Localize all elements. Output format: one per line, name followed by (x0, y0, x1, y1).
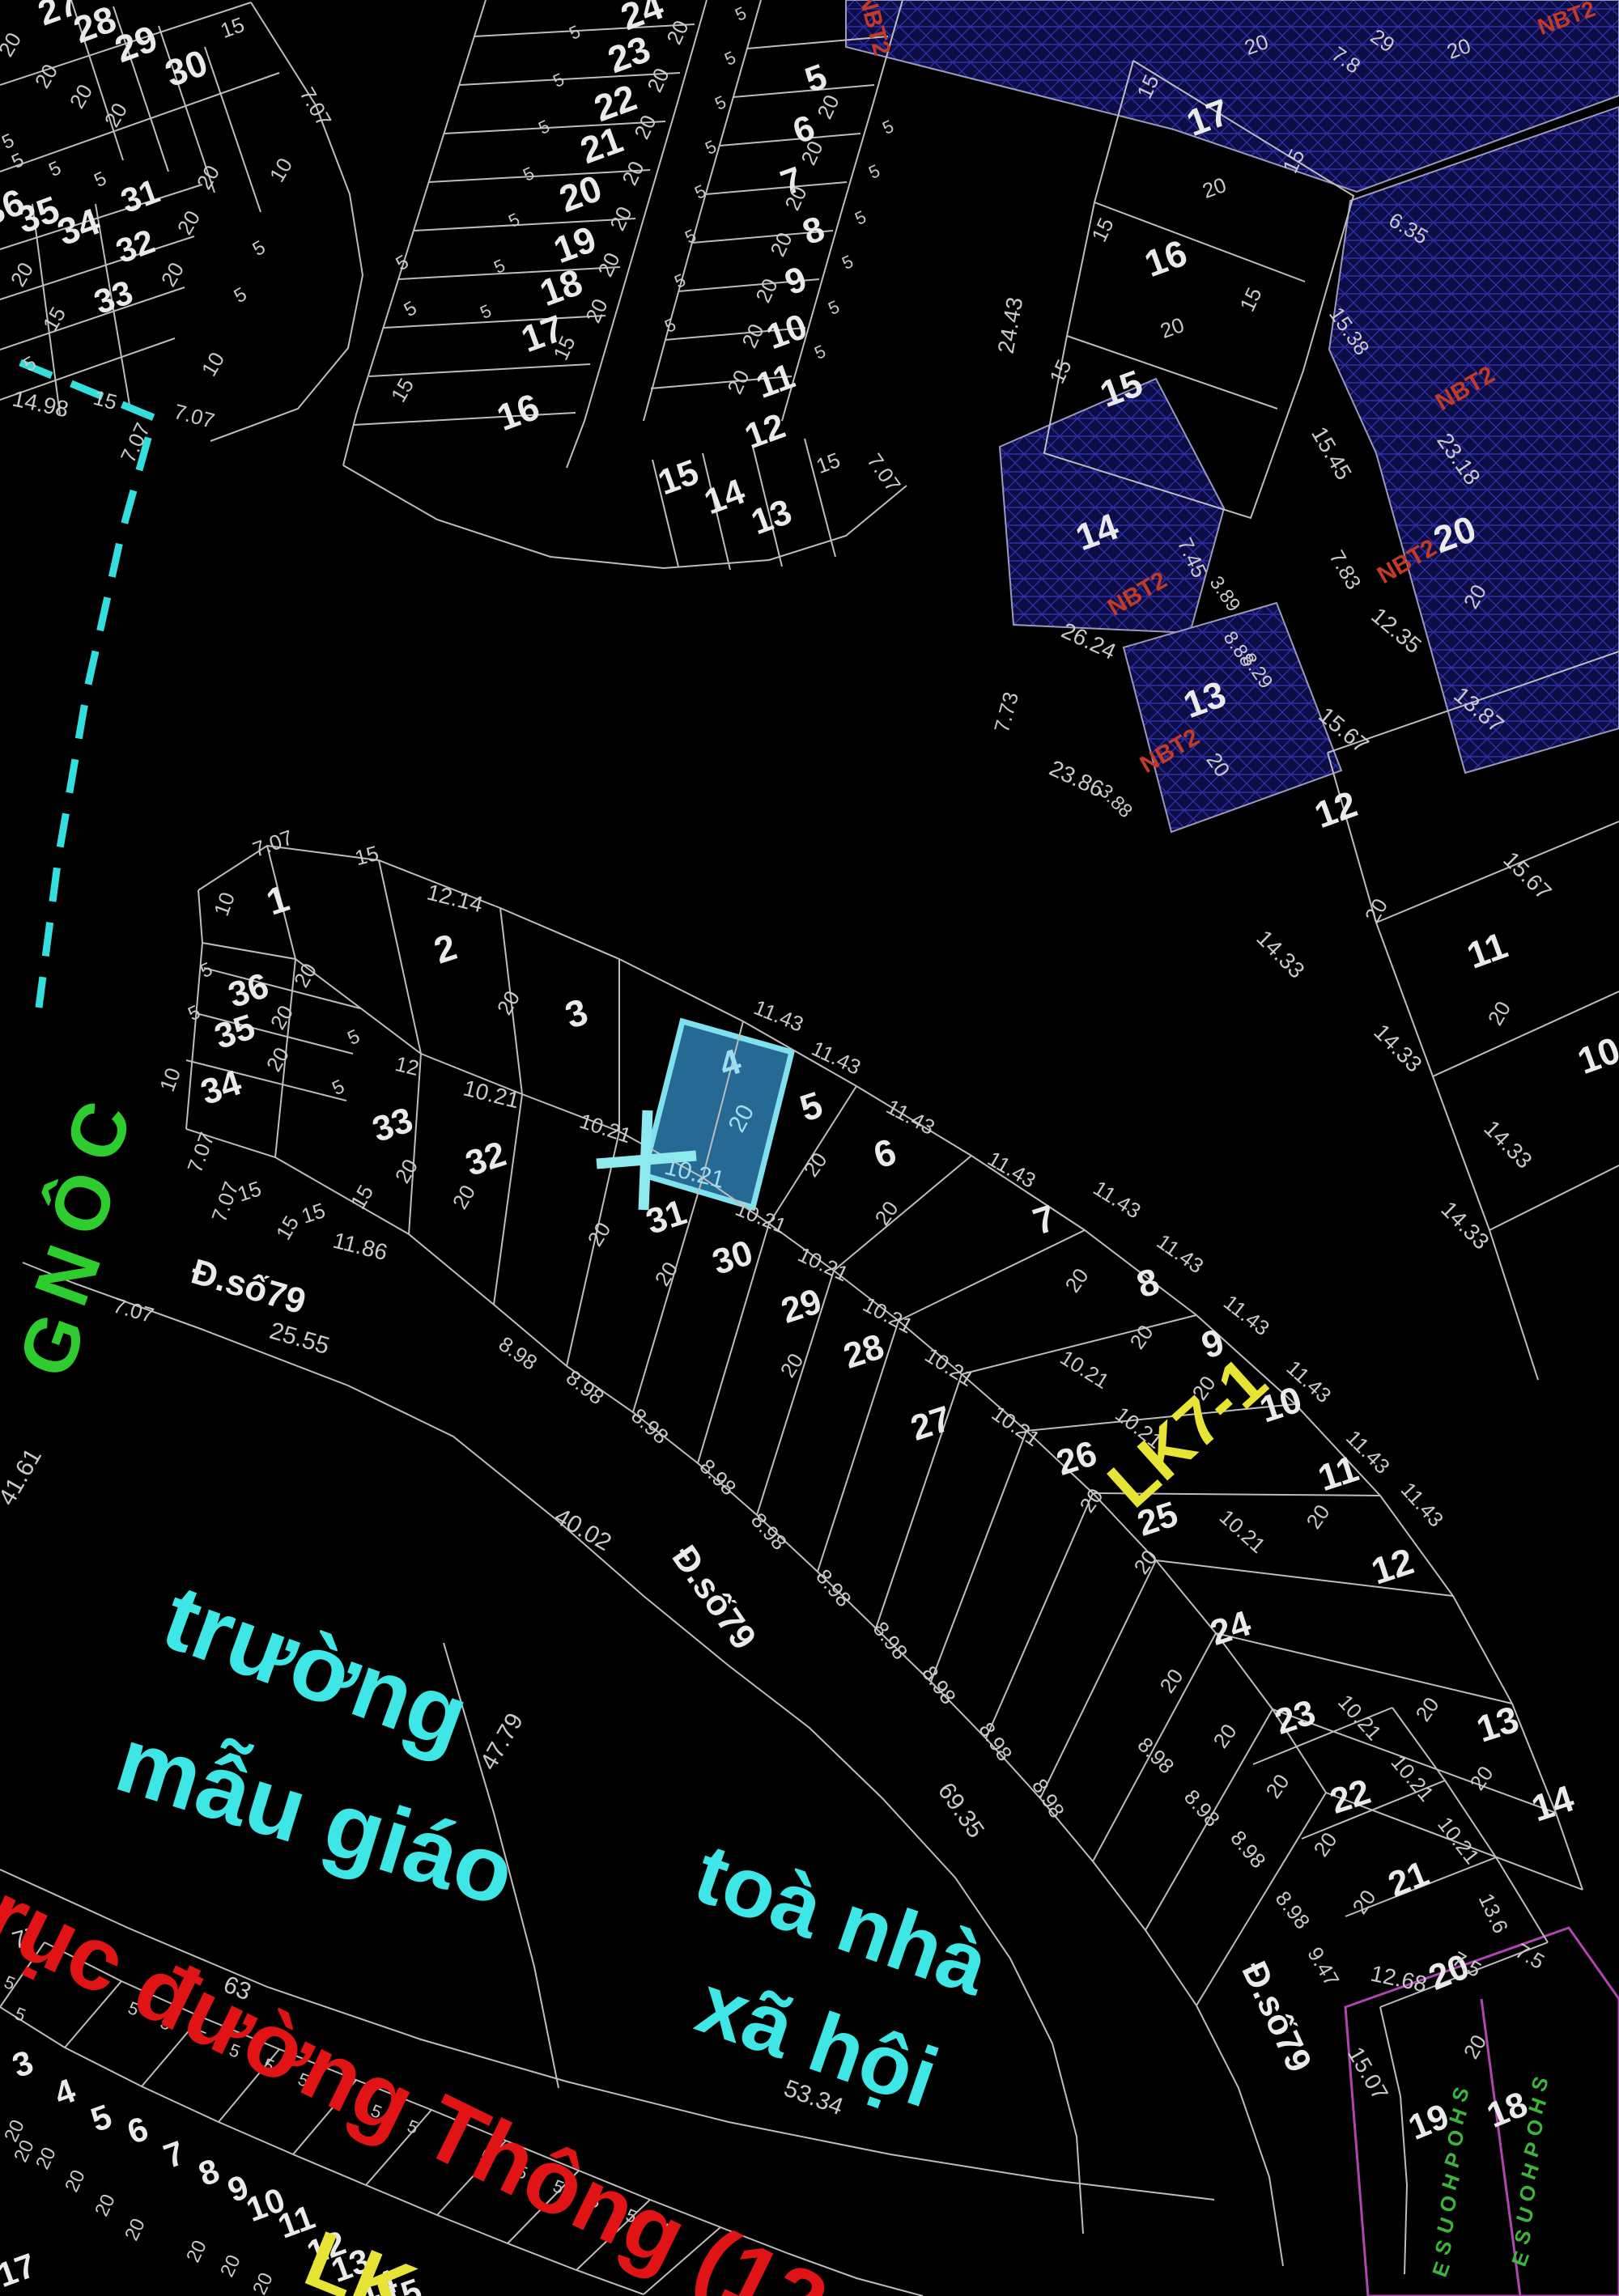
dimension-label: 11.43 (1396, 1478, 1449, 1532)
dimension-label: 20 (1260, 1770, 1294, 1803)
cong-letter: Ô (33, 1161, 134, 1246)
dimension-label: 8.98 (917, 1662, 961, 1709)
plot-divider (899, 1230, 1085, 1321)
shophouse-letter: O (1520, 2116, 1549, 2139)
dimension-label: 14.33 (1436, 1196, 1494, 1254)
dimension-label: 20 (1199, 172, 1229, 203)
plot-number: 3 (7, 2043, 38, 2085)
plot-line (1392, 1708, 1548, 1942)
shophouse-letter: O (1513, 2181, 1541, 2205)
dimension-label: 20 (390, 1155, 423, 1187)
dimension-label: 11.86 (330, 1228, 389, 1266)
plot-number: 5 (795, 1083, 827, 1129)
dimension-label: 20 (605, 203, 636, 235)
shophouse-letter: P (1439, 2150, 1467, 2171)
dimension-label: 8.98 (974, 1718, 1017, 1766)
dimension-label: 11.43 (1219, 1290, 1274, 1341)
shophouse-letter: U (1432, 2214, 1460, 2237)
dimension-label: 20 (261, 1043, 294, 1076)
plot-line (644, 0, 761, 421)
dimension-label: 5 (505, 209, 523, 231)
dimension-label: 7.73 (989, 690, 1023, 736)
dimension-label: 8.98 (1226, 1826, 1271, 1873)
plot-number: 17 (0, 2246, 40, 2294)
dimension-label: 5 (19, 352, 40, 376)
dimension-label: 20 (156, 258, 189, 291)
plot-number: 26 (1052, 1433, 1102, 1483)
dimension-label: 7.07 (111, 1293, 157, 1328)
dimension-label: 11.43 (984, 1146, 1040, 1193)
plot-number: 32 (461, 1134, 511, 1184)
plot-divider (834, 1156, 971, 1271)
dimension-label: 5 (185, 1001, 204, 1025)
plot-divider (986, 1493, 1093, 1738)
plot-divider (379, 860, 421, 1054)
dimension-label: 20 (6, 258, 38, 291)
nbt2-hatched-area (1329, 107, 1619, 773)
dimension-label: 8.98 (746, 1508, 792, 1555)
dimension-label: 10.21 (794, 1242, 852, 1287)
plot-divider (494, 1094, 522, 1305)
dimension-label: 5 (45, 157, 65, 181)
dimension-label: 15 (38, 303, 70, 335)
dimension-label: 14.98 (11, 386, 71, 422)
dimension-label: 5 (12, 2003, 29, 2026)
plot-line (1094, 202, 1305, 282)
dimension-label: 20 (289, 959, 321, 991)
dimension-label: 20 (798, 1148, 831, 1182)
cong-letter: G (2, 1302, 104, 1388)
dimension-label: 10.21 (988, 1401, 1045, 1451)
dimension-label: 11.43 (808, 1036, 865, 1080)
plot-number: 6 (869, 1130, 901, 1176)
selection-cross-marker (644, 1110, 648, 1210)
dimension-label: 20 (1074, 1484, 1107, 1517)
dimension-label: 20 (192, 161, 224, 193)
plot-number: 11 (1461, 923, 1512, 977)
dimension-label: 15 (346, 1181, 378, 1213)
dimension-label: 8.98 (1027, 1775, 1069, 1823)
dimension-label: 8.98 (562, 1365, 609, 1410)
dimension-label: 20 (1128, 1546, 1162, 1579)
dimension-label: 5 (671, 269, 689, 292)
dimension-label: 5 (732, 2, 750, 25)
plot-number: 33 (89, 273, 138, 321)
dimension-label: 10.21 (461, 1075, 521, 1113)
dimension-label: 5 (702, 136, 720, 159)
plot-number: 12 (740, 406, 791, 457)
dimension-label: 20 (722, 367, 754, 398)
dimension-label: 10.21 (576, 1109, 634, 1148)
dimension-label: 15.45 (1307, 422, 1357, 484)
plot-number: 4 (49, 2071, 81, 2113)
plot-number: 10 (762, 307, 813, 358)
dimension-label: 5 (477, 300, 495, 323)
plot-number: 8 (193, 2151, 224, 2193)
shophouse-letter: O (1441, 2126, 1469, 2150)
plot-number: 23 (1270, 1692, 1320, 1742)
dimension-label: 5 (825, 296, 843, 319)
dimension-label: 20 (1301, 1500, 1334, 1534)
plot-number: 34 (196, 1063, 246, 1113)
dimension-label: 20 (172, 206, 205, 239)
dimension-label: 11.43 (1089, 1176, 1145, 1224)
plot-line (1067, 336, 1277, 409)
plot-line (429, 170, 650, 182)
dimension-label: 69.35 (933, 1778, 989, 1843)
dimension-label: 5 (839, 251, 856, 274)
shophouse-letter: E (1506, 2248, 1534, 2270)
cong-letter: C (49, 1091, 148, 1173)
dimension-label: 8.98 (495, 1331, 542, 1375)
plot-line (720, 134, 860, 146)
dimension-label: 5 (865, 160, 883, 183)
shophouse-letter: H (1437, 2171, 1465, 2193)
dimension-label: 7.07 (862, 449, 906, 497)
plot-number: 5 (86, 2097, 117, 2139)
dimension-label: 20 (121, 2215, 150, 2244)
dimension-label: 41.61 (0, 1444, 47, 1510)
plot-number: 16 (1139, 231, 1192, 285)
plot-line (343, 465, 907, 568)
dimension-label: 20 (65, 80, 97, 112)
dimension-label: 5 (392, 251, 412, 275)
dimension-label: 12.35 (1366, 603, 1426, 659)
dimension-label: 10 (209, 889, 240, 919)
shophouse-letter: S (1526, 2073, 1553, 2095)
plot-number: 24 (1205, 1603, 1256, 1653)
dimension-label: 3.89 (1205, 572, 1245, 616)
plot-line (399, 267, 620, 279)
cong-letter: N (18, 1235, 117, 1317)
dimension-label: 20 (869, 1197, 903, 1230)
dimension-label: 15 (1044, 356, 1076, 388)
dimension-label: 5 (230, 283, 250, 308)
dimension-label: 20 (0, 28, 26, 61)
dimension-label: 15 (352, 841, 381, 870)
dimension-label: 20 (91, 2191, 120, 2220)
dimension-label: 15 (271, 1212, 304, 1244)
plot-number: 32 (111, 222, 159, 270)
dimension-label: 10.21 (920, 1343, 978, 1391)
plot-number: 13 (1472, 1697, 1524, 1750)
plot-number: 3 (560, 990, 593, 1036)
street-name: Đ.số79 (665, 1538, 764, 1657)
plot-number: 7 (159, 2133, 189, 2175)
dimension-label: 20 (492, 987, 525, 1019)
dimension-label: 11.43 (1153, 1229, 1209, 1279)
plot-divider (409, 1054, 421, 1234)
plot-number: 22 (1325, 1772, 1375, 1822)
plot-number: 27 (906, 1398, 956, 1449)
plot-number: 28 (839, 1326, 889, 1377)
plot-number: 29 (776, 1281, 826, 1331)
dimension-label: 5 (661, 314, 679, 337)
dimension-label: 20 (776, 1349, 809, 1381)
dimension-label: 5 (879, 116, 897, 138)
dimension-label: 20 (750, 275, 782, 307)
plot-line (1328, 753, 1538, 1380)
plot-number: 16 (491, 385, 545, 439)
plot-number: 7 (1028, 1196, 1060, 1242)
area-name: mẫu giáo (105, 1708, 526, 1926)
dimension-label: 7.83 (1324, 546, 1366, 594)
plot-number: 36 (223, 966, 274, 1016)
dimension-label: 20 (266, 1001, 298, 1033)
dimension-label: 8.98 (1133, 1733, 1179, 1779)
plot-line (210, 2, 363, 441)
dimension-label: 5 (550, 69, 567, 91)
plot-line (343, 0, 486, 465)
plot-number: 12 (1309, 783, 1362, 836)
dimension-label: 20 (1060, 1264, 1093, 1297)
street-name: Đ.số79 (1234, 1955, 1319, 2077)
dimension-label: 20 (617, 158, 648, 189)
plot-number: 2 (429, 925, 461, 971)
dimension-label: 15.67 (1498, 847, 1556, 904)
dimension-label: 10.21 (1387, 1750, 1439, 1806)
plot-line (414, 219, 635, 231)
dimension-label: 10 (155, 1064, 185, 1094)
plot-number: 12 (1366, 1539, 1419, 1592)
dimension-label: 14.33 (1479, 1115, 1536, 1173)
dimension-label: 7.07 (295, 83, 336, 131)
dimension-label: 20 (1410, 1693, 1443, 1726)
dimension-label: 15 (1234, 284, 1266, 316)
shophouse-letter: H (1516, 2160, 1545, 2183)
dimension-label: 20 (61, 2167, 90, 2196)
plot-number: 33 (368, 1100, 418, 1150)
dimension-label: 12.68 (1369, 1961, 1430, 1997)
dimension-label: 25.55 (266, 1318, 332, 1360)
dimension-label: 5 (344, 1025, 363, 1050)
plot-number: 8 (1132, 1259, 1164, 1305)
dimension-label: 8.98 (1179, 1785, 1225, 1831)
dimension-label: 14.33 (1251, 925, 1309, 982)
dimension-label: 10 (265, 154, 297, 186)
dimension-label: 5 (852, 206, 869, 229)
plot-divider (931, 1431, 1026, 1682)
plot-number: 14 (1527, 1776, 1579, 1829)
plot-number: 30 (708, 1233, 758, 1283)
plot-number: 1 (261, 876, 294, 923)
dimension-label: 20 (1208, 1720, 1241, 1753)
plot-number: 14 (699, 471, 750, 522)
dimension-label: 10.21 (1056, 1345, 1113, 1394)
plot-divider (1040, 1560, 1156, 1798)
dimension-label: 15 (386, 374, 419, 406)
dimension-label: 5 (8, 149, 28, 173)
dimension-label: 20 (1483, 997, 1515, 1029)
plot-line (733, 85, 874, 97)
plot-divider (198, 890, 202, 943)
dimension-label: 20 (182, 2237, 211, 2266)
plot-number: 31 (116, 172, 164, 220)
plot-number: 11 (751, 356, 800, 406)
dimension-label: 10.21 (732, 1196, 790, 1238)
dimension-label: 5 (712, 91, 729, 114)
dimension-label: 11.43 (882, 1094, 939, 1140)
shophouse-letter: P (1519, 2139, 1546, 2161)
dimension-label: 47.79 (475, 1708, 529, 1775)
dimension-label: 20 (448, 1181, 480, 1213)
dimension-label: 20 (1157, 312, 1187, 343)
shophouse-letter: E (1427, 2259, 1455, 2281)
dimension-label: 5 (520, 163, 538, 185)
dimension-label: 20 (249, 2269, 278, 2296)
dimension-label: 13.6 (1474, 1890, 1514, 1937)
dimension-label: 10 (197, 348, 229, 380)
dimension-label: 20 (30, 60, 62, 92)
dimension-label: 7.07 (206, 1178, 244, 1225)
plot-number: 21 (1383, 1853, 1434, 1905)
dimension-label: 5 (400, 297, 420, 321)
dimension-label: 14.33 (1369, 1019, 1426, 1076)
plot-line (1376, 821, 1619, 923)
dimension-label: 5 (721, 47, 739, 70)
plot-number: 19 (548, 218, 601, 271)
plot-number: 29 (109, 17, 163, 70)
shophouse-letter: U (1511, 2204, 1540, 2226)
dimension-label: 15 (813, 448, 843, 478)
dimension-label: 8.98 (1271, 1886, 1315, 1933)
dimension-label: 7.07 (249, 825, 296, 862)
dimension-label: 20 (216, 2251, 245, 2281)
dimension-label: 5 (811, 341, 829, 363)
dimension-label: 40.02 (550, 1503, 616, 1556)
plot-number: 35 (210, 1007, 260, 1057)
dimension-label: 7.07 (182, 1129, 219, 1176)
dimension-label: 12.14 (424, 879, 485, 917)
dimension-label: 8.98 (695, 1454, 742, 1500)
dimension-label: 20 (1308, 1828, 1341, 1861)
dimension-label: 10.21 (1333, 1690, 1387, 1745)
dimension-label: 20 (583, 1218, 616, 1250)
plot-number: 13 (746, 492, 797, 543)
dimension-label: 12 (393, 1051, 421, 1080)
plot-line (1489, 1165, 1619, 1230)
plot-number: 10 (1572, 1029, 1619, 1082)
shophouse-letter: S (1447, 2084, 1474, 2106)
plot-line (1380, 2007, 1407, 2274)
dimension-label: 5 (249, 236, 269, 261)
street-name: Đ.số79 (187, 1252, 310, 1322)
plot-line (369, 364, 590, 376)
plot-number: 6 (122, 2109, 153, 2151)
plot-line (706, 182, 847, 194)
dimension-label: 15 (91, 385, 120, 414)
shophouse-letter: S (1430, 2237, 1457, 2259)
dimension-label: 24.43 (993, 295, 1028, 355)
dimension-label: 5 (566, 21, 584, 44)
dimension-label: 5 (91, 168, 110, 192)
shophouse-letter: O (1434, 2192, 1462, 2215)
dimension-label: 7.07 (172, 399, 218, 433)
map-svg: 2728293031323334353620202020157.07555520… (0, 0, 1619, 2296)
cadastral-map: 2728293031323334353620202020157.07555520… (0, 0, 1619, 2296)
dimension-label: 9.47 (1302, 1943, 1344, 1991)
dimension-label: 10.21 (1433, 1812, 1485, 1869)
dimension-label: 10.21 (1215, 1504, 1270, 1558)
dimension-label: 20 (1360, 894, 1392, 927)
dimension-label: 15 (217, 12, 247, 43)
